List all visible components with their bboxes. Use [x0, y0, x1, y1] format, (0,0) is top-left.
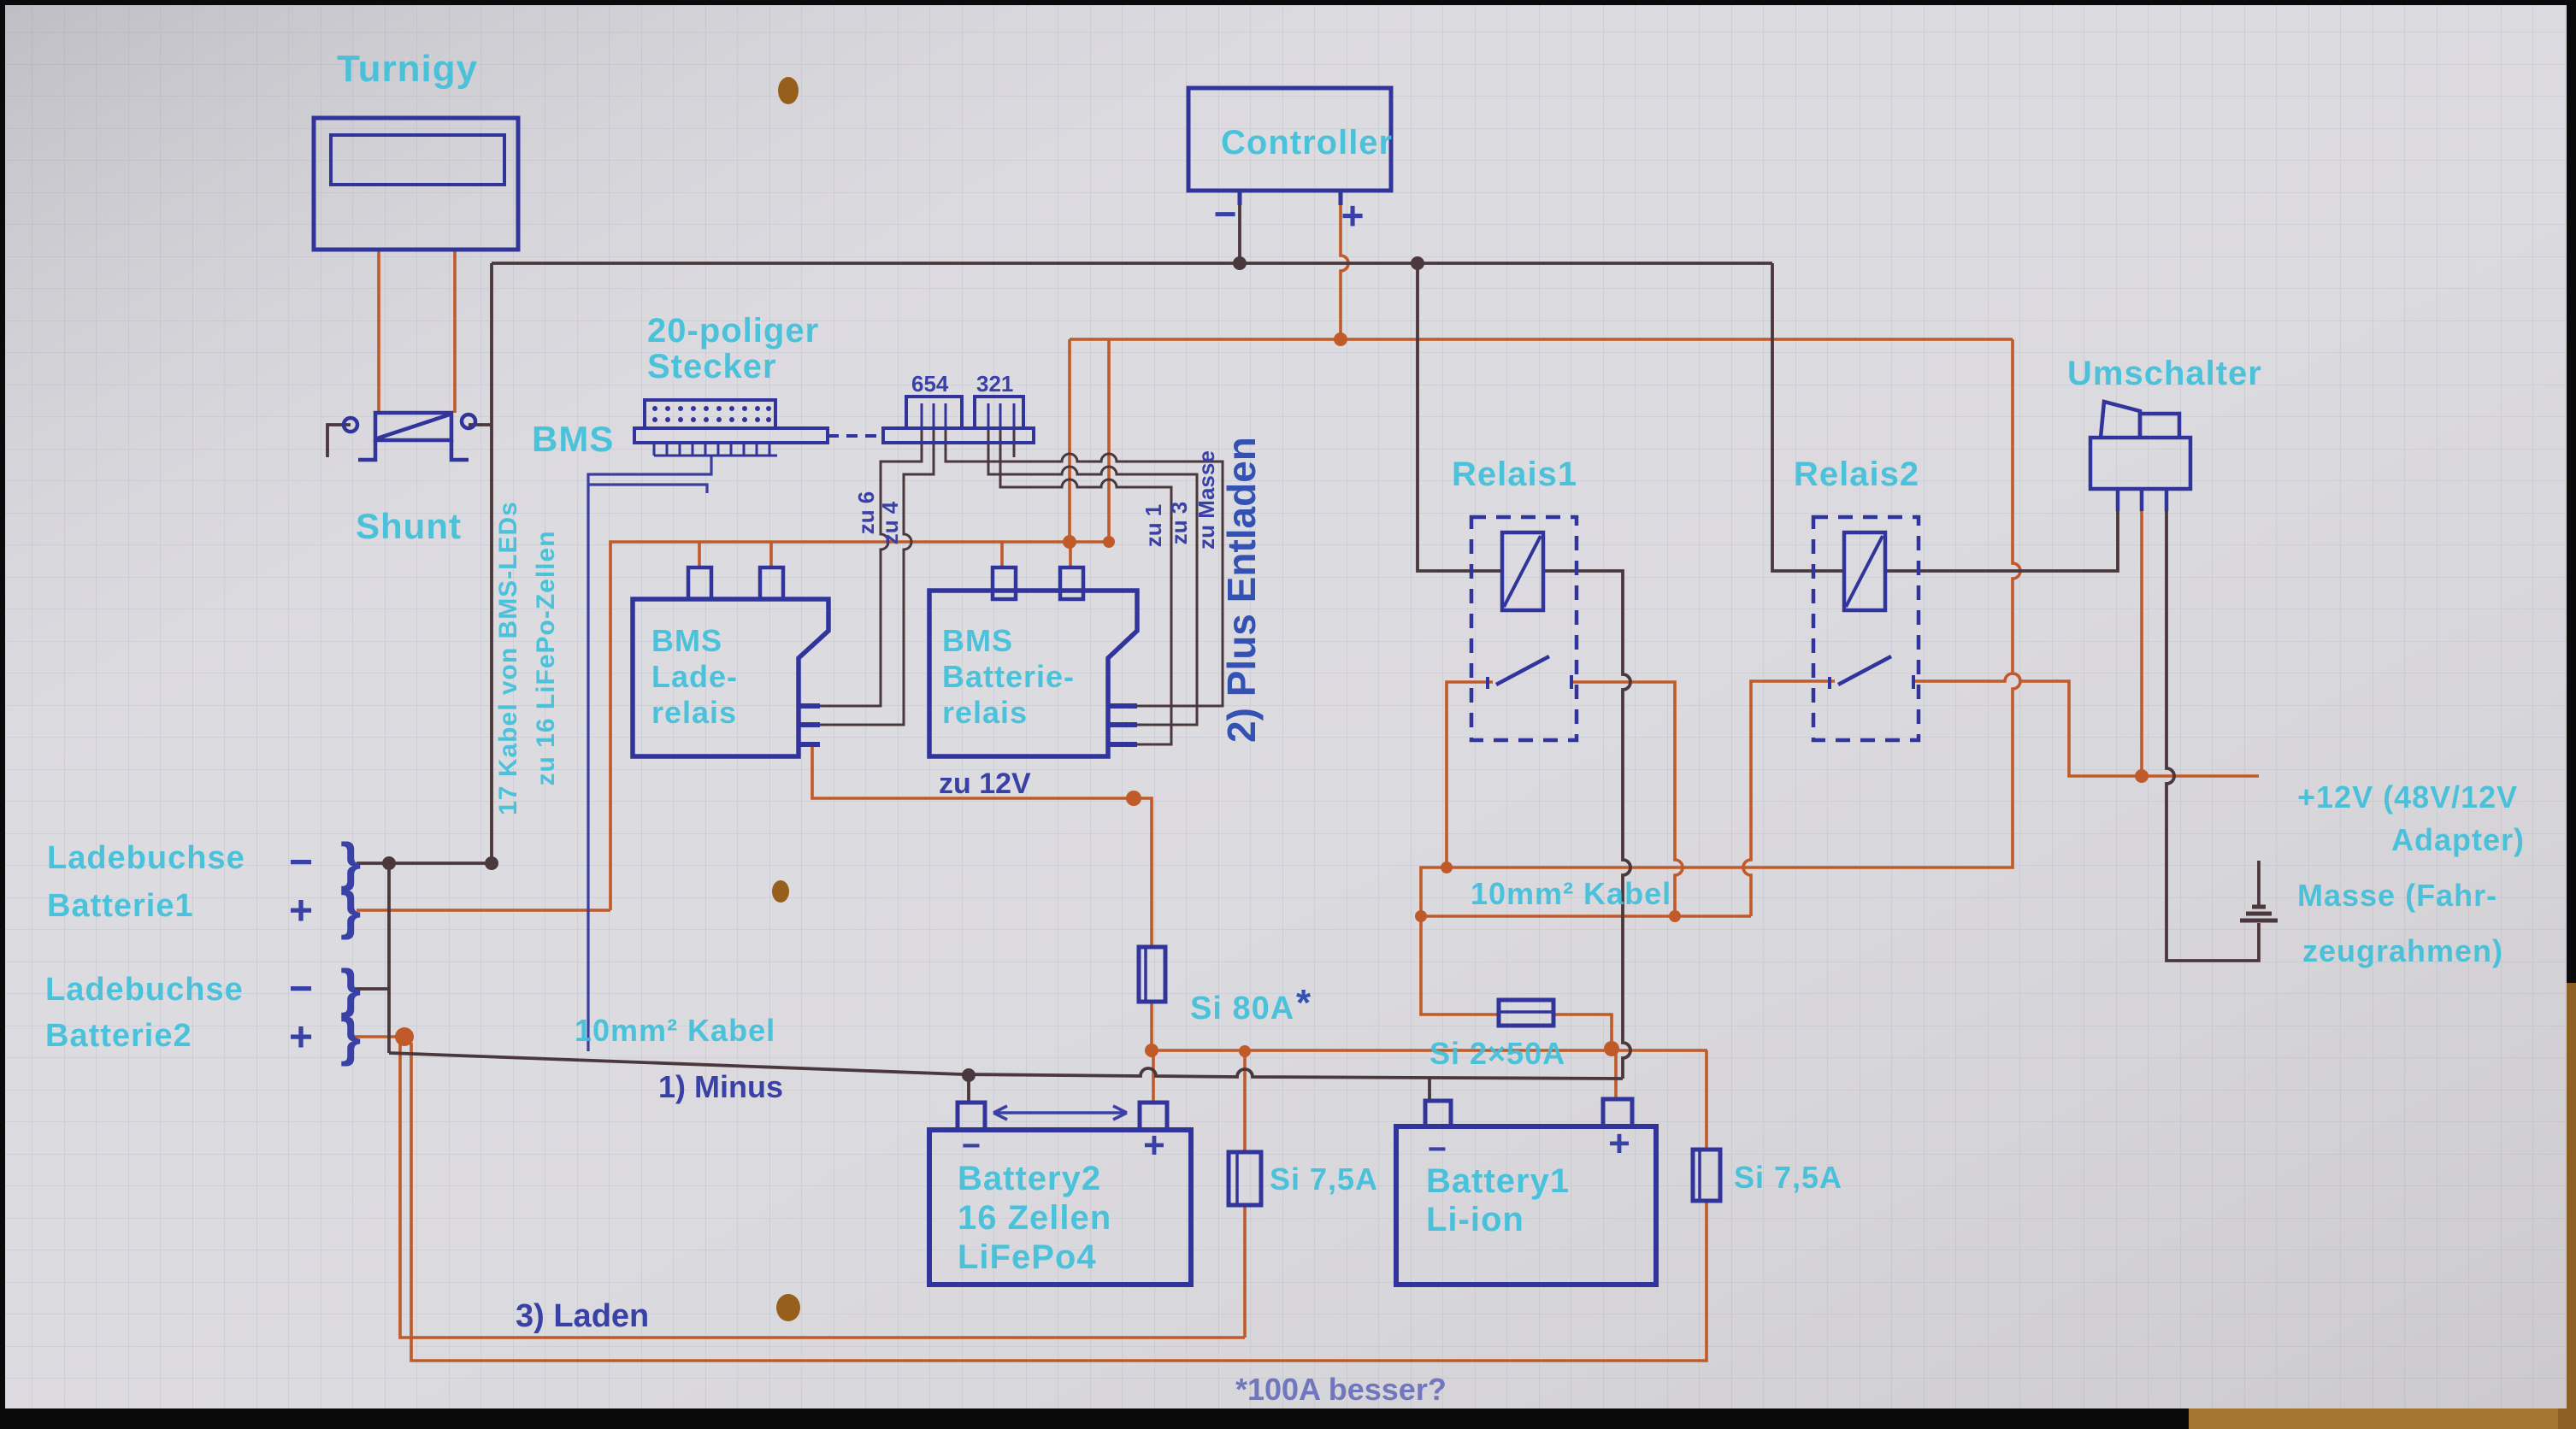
- label-bms: BMS: [532, 419, 614, 459]
- label-battery2-3: LiFePo4: [958, 1238, 1097, 1276]
- lb2-plus-sign: +: [289, 1015, 313, 1061]
- label-pins-654: 654: [911, 371, 949, 397]
- label-12v-1: +12V (48V/12V: [2297, 779, 2518, 814]
- label-footnote: *100A besser?: [1235, 1372, 1447, 1407]
- label-masse-1: Masse (Fahr-: [2297, 878, 2497, 913]
- label-si80-asterisk: *: [1296, 982, 1312, 1024]
- label-ladebuchse2-1: Ladebuchse: [45, 972, 244, 1008]
- punch-hole: [776, 1294, 800, 1321]
- label-battery2-2: 16 Zellen: [958, 1199, 1111, 1237]
- schematic-canvas: Turnigy Controller − + 20-poliger Stecke…: [0, 0, 2576, 1429]
- label-controller: Controller: [1221, 124, 1393, 162]
- label-zu12v: zu 12V: [939, 767, 1031, 800]
- label-umschalter: Umschalter: [2067, 355, 2262, 392]
- label-zu1: zu 1: [1141, 504, 1166, 548]
- label-12v-2: Adapter): [2391, 822, 2525, 857]
- label-zu6: zu 6: [853, 491, 879, 535]
- label-laderelais-3: relais: [651, 695, 737, 730]
- label-relais2: Relais2: [1794, 456, 1919, 493]
- photo-of-schematic: Turnigy Controller − + 20-poliger Stecke…: [0, 0, 2576, 1429]
- label-10mm-left: 10mm² Kabel: [575, 1013, 775, 1048]
- battery1-plus-sign: +: [1608, 1123, 1630, 1165]
- label-17kabel-2: zu 16 LiFePo-Zellen: [532, 530, 560, 785]
- label-ladebuchse1-1: Ladebuchse: [47, 840, 245, 876]
- battery2-minus-sign: −: [962, 1128, 981, 1164]
- photo-background: [0, 0, 2576, 1429]
- label-zu4: zu 4: [877, 501, 903, 544]
- label-pins-321: 321: [976, 371, 1013, 397]
- label-batterierelais-1: BMS: [942, 623, 1013, 658]
- punch-hole: [778, 77, 799, 104]
- lb1-plus-socket: }: [340, 882, 361, 941]
- lb2-minus-sign: −: [289, 967, 313, 1012]
- label-ladebuchse1-2: Batterie1: [47, 888, 194, 924]
- label-si80: Si 80A: [1190, 991, 1294, 1026]
- lb2-plus-socket: }: [340, 1009, 361, 1067]
- label-shunt: Shunt: [356, 506, 462, 546]
- label-stecker-1: 20-poliger: [647, 312, 819, 350]
- lb1-plus-sign: +: [289, 889, 313, 934]
- label-si2x50: Si 2×50A: [1429, 1036, 1565, 1071]
- label-plus-entladen: 2) Plus Entladen: [1219, 437, 1264, 743]
- label-zu-masse: zu Masse: [1194, 450, 1219, 550]
- lb1-minus-sign: −: [289, 840, 313, 885]
- label-zu3: zu 3: [1166, 502, 1192, 545]
- label-laderelais-2: Lade-: [651, 659, 738, 694]
- label-battery2-1: Battery2: [958, 1160, 1101, 1197]
- controller-minus-sign: −: [1214, 191, 1237, 236]
- label-ladebuchse2-2: Batterie2: [45, 1018, 192, 1054]
- label-turnigy: Turnigy: [337, 48, 478, 90]
- punch-hole: [772, 880, 789, 903]
- label-minus-note: 1) Minus: [658, 1069, 783, 1104]
- controller-plus-sign: +: [1341, 193, 1365, 238]
- label-relais1: Relais1: [1452, 456, 1577, 493]
- label-batterierelais-3: relais: [942, 695, 1028, 730]
- label-batterierelais-2: Batterie-: [942, 659, 1075, 694]
- label-battery1-2: Li-ion: [1426, 1201, 1524, 1238]
- label-laden-note: 3) Laden: [516, 1298, 649, 1334]
- label-si75-right: Si 7,5A: [1734, 1160, 1842, 1195]
- label-laderelais-1: BMS: [651, 623, 722, 658]
- label-10mm-mid: 10mm² Kabel: [1471, 876, 1671, 911]
- label-masse-2: zeugrahmen): [2302, 933, 2503, 968]
- label-si75-left: Si 7,5A: [1270, 1161, 1378, 1197]
- battery2-plus-sign: +: [1143, 1125, 1165, 1167]
- label-17kabel-1: 17 Kabel von BMS-LEDs: [494, 501, 522, 815]
- label-stecker-2: Stecker: [647, 348, 777, 385]
- label-battery1-1: Battery1: [1426, 1162, 1570, 1200]
